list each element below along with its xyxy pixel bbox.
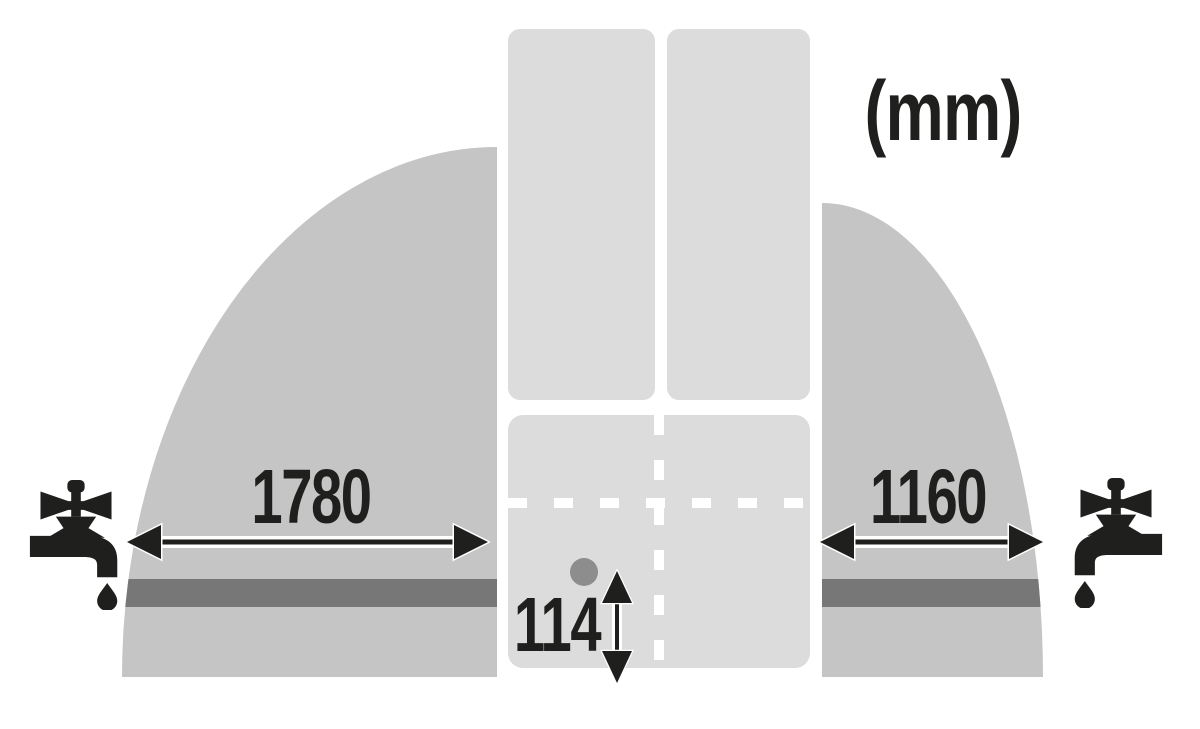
- appliance-right-door: [667, 29, 810, 400]
- unit-label: (mm): [864, 69, 1021, 153]
- left-reach-value: 1780: [251, 459, 370, 536]
- double-headed-vertical-arrow: [598, 569, 636, 685]
- faucet-icon-left: [28, 480, 124, 610]
- left-hose-bar: [100, 579, 497, 607]
- appliance-left-door: [508, 29, 655, 400]
- inlet-offset-value: 114: [514, 587, 600, 664]
- faucet-icon-right: [1068, 478, 1164, 608]
- right-hose-bar: [822, 579, 1062, 607]
- dashed-line-vertical: [654, 415, 664, 665]
- right-reach-value: 1160: [870, 459, 986, 536]
- installation-clearance-diagram: 1780 1160 114 (mm): [0, 0, 1200, 729]
